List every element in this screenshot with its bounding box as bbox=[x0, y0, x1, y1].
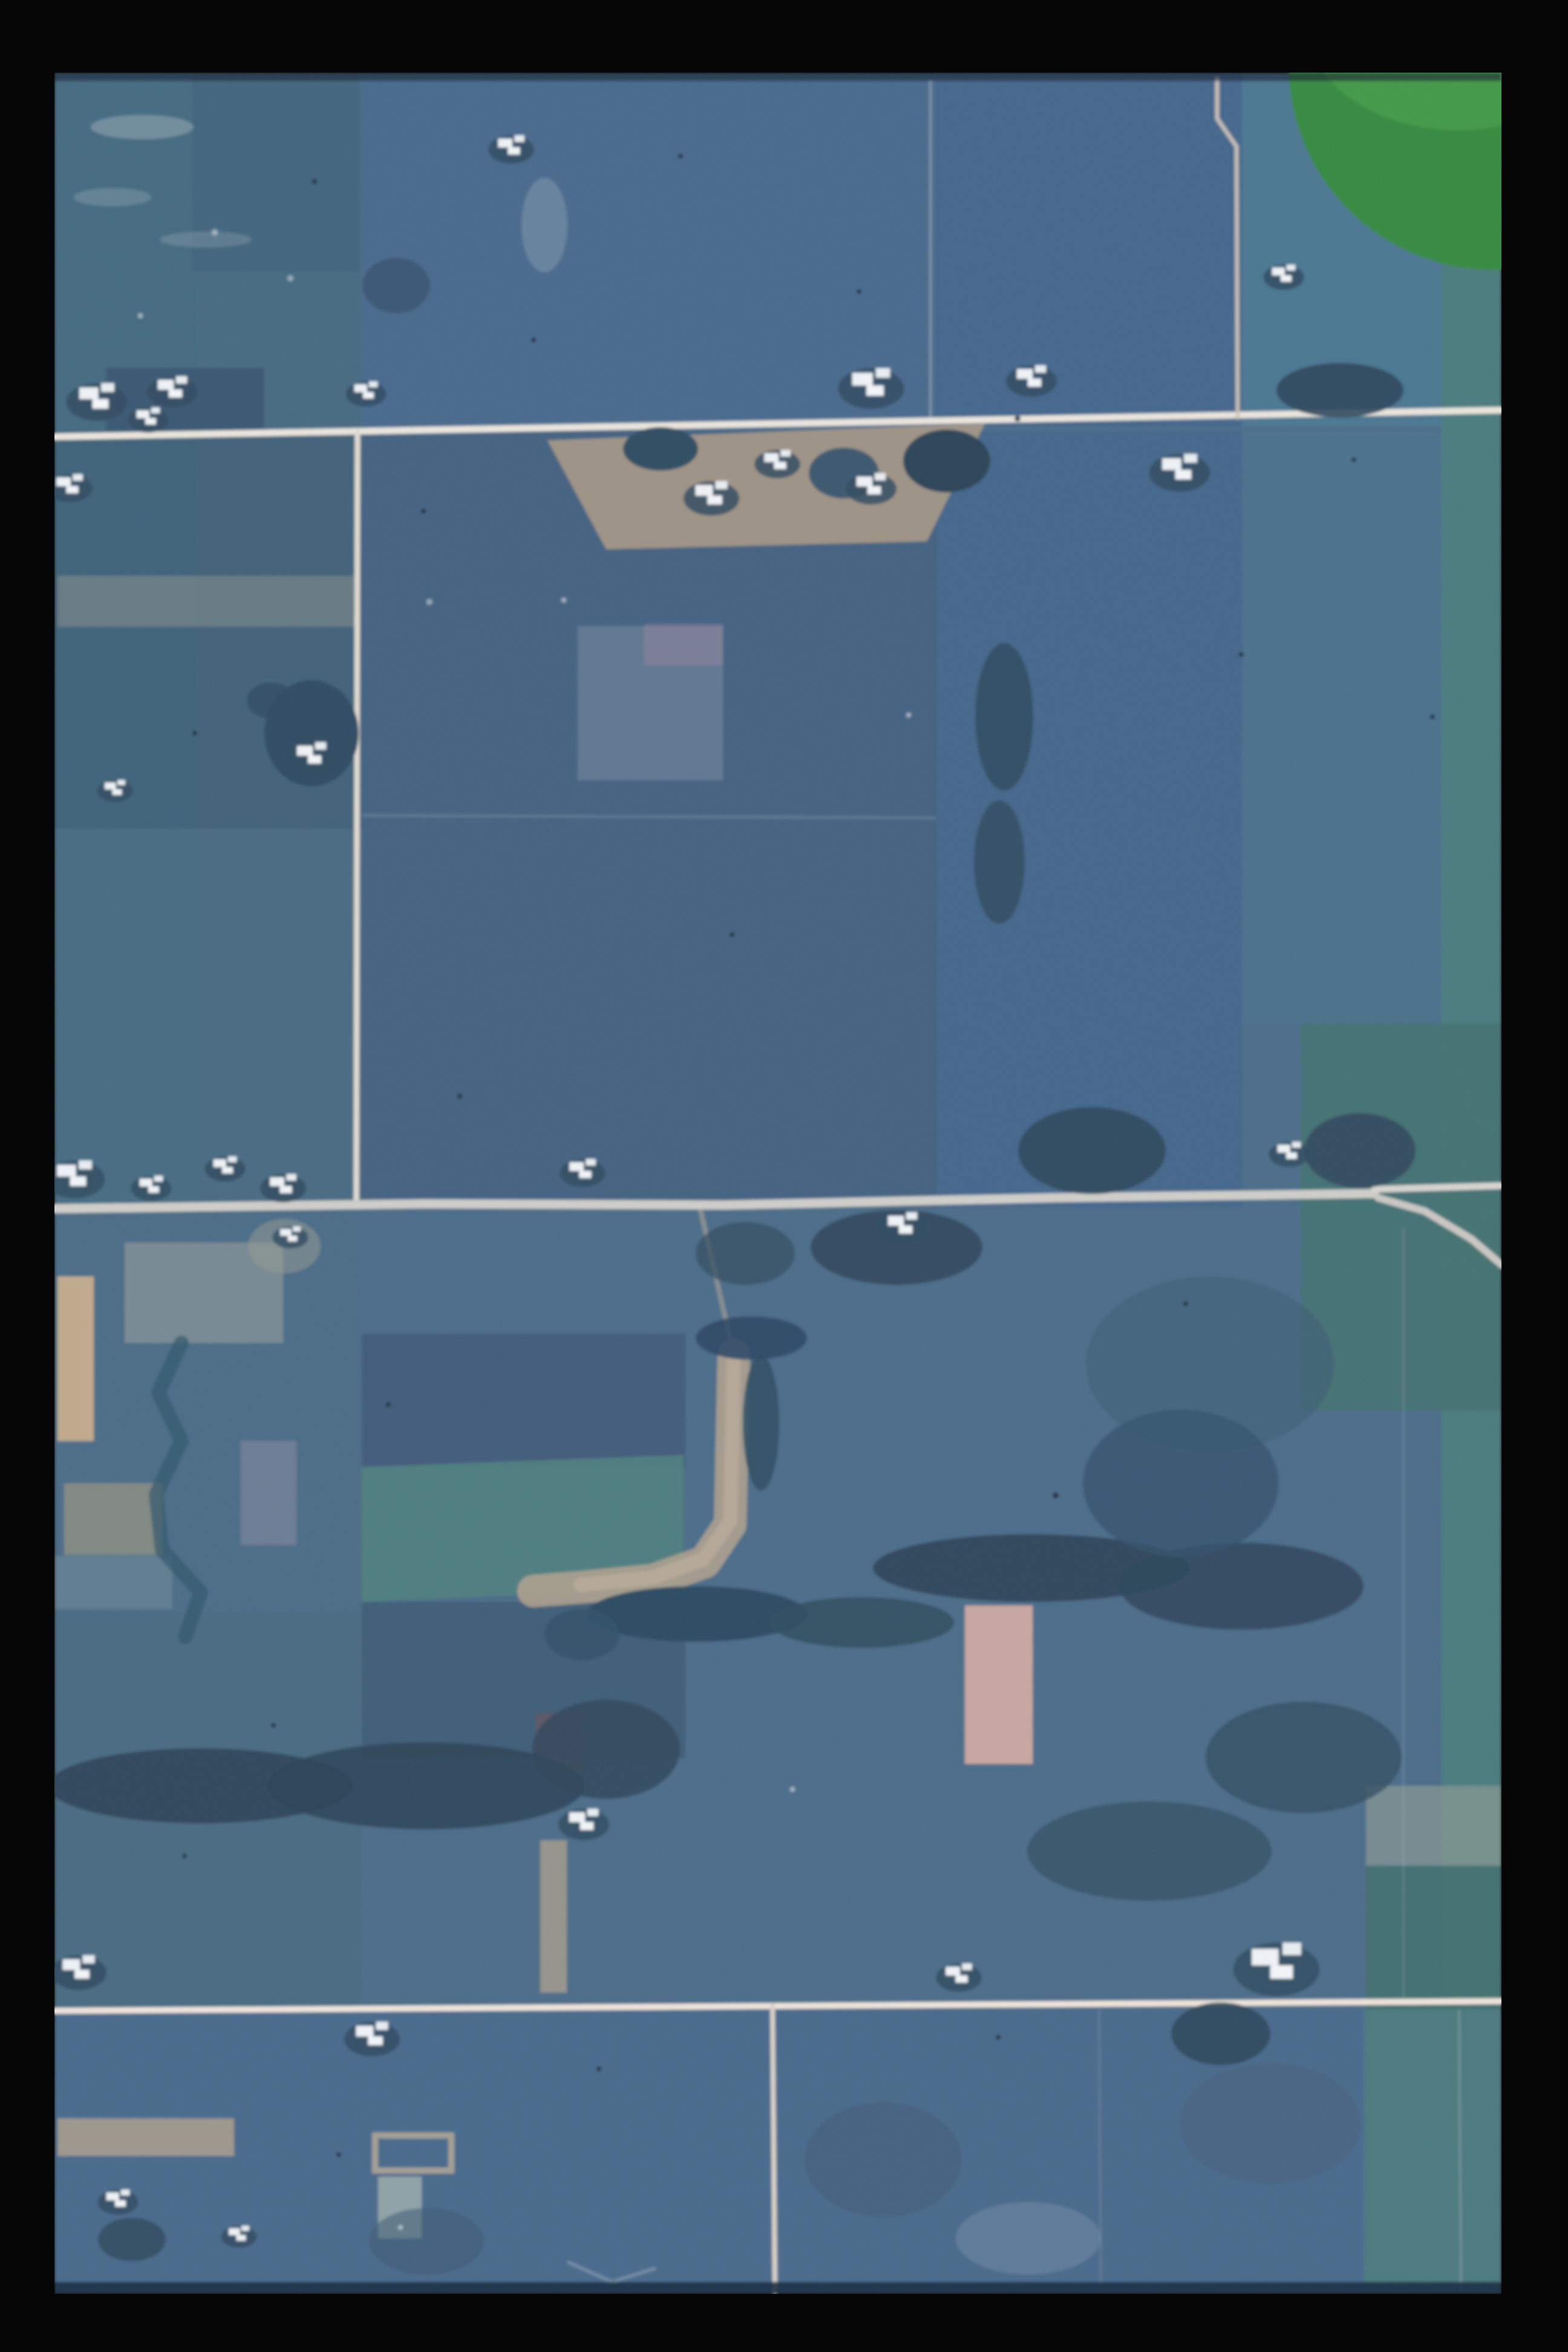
slide-svg bbox=[0, 0, 1568, 2352]
slide-scan-root bbox=[0, 0, 1568, 2352]
film-grain-overlay bbox=[54, 73, 1501, 2294]
film-grain bbox=[54, 73, 1501, 2294]
